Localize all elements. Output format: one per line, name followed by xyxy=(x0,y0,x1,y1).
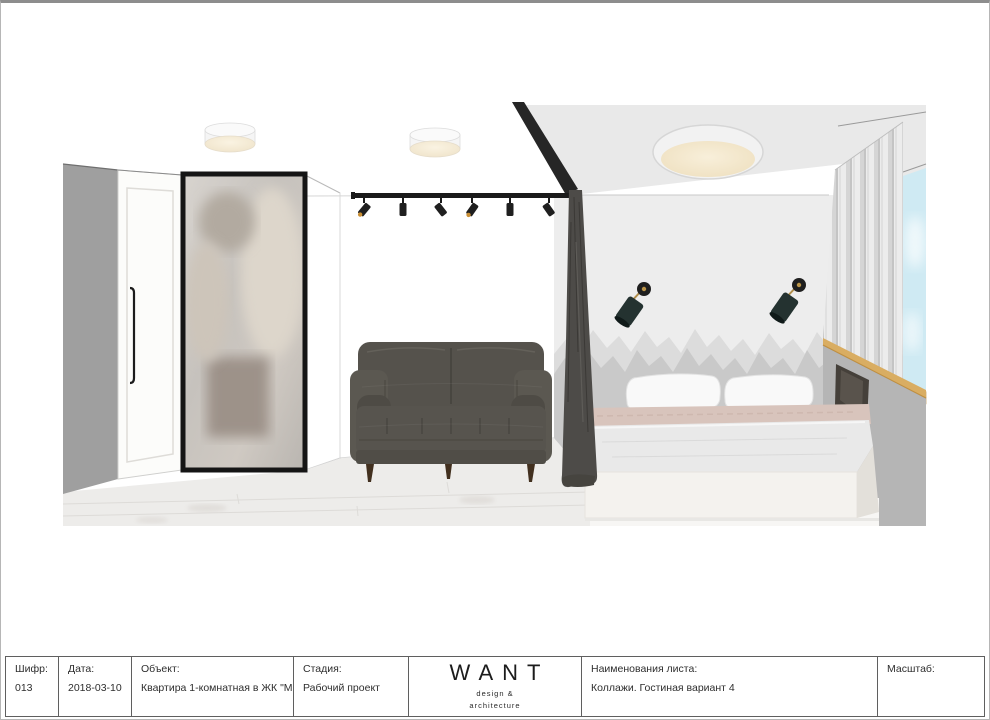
stage-label: Стадия: xyxy=(303,664,399,675)
want-logo: WANT design & architecture xyxy=(408,657,581,716)
object-value: Квартира 1-комнатная в ЖК "Май" xyxy=(141,683,284,694)
titleblock-cell-object: Объект: Квартира 1-комнатная в ЖК "Май" xyxy=(131,657,293,716)
drawing-sheet: Шифр: 013 Дата: 2018-03-10 Объект: Кварт… xyxy=(0,0,990,720)
stage-value: Рабочий проект xyxy=(303,683,399,694)
ceiling-lamp-small-2 xyxy=(410,128,460,157)
titleblock-cell-sheet: Наименования листа: Коллажи. Гостиная ва… xyxy=(581,657,877,716)
pillow xyxy=(626,374,720,412)
left-wall xyxy=(63,164,118,494)
collage-image xyxy=(57,102,929,526)
scale-label: Масштаб: xyxy=(887,664,975,675)
code-value: 013 xyxy=(15,683,49,694)
date-value: 2018-03-10 xyxy=(68,683,122,694)
sheet-value: Коллажи. Гостиная вариант 4 xyxy=(591,683,868,694)
mirror xyxy=(183,174,305,470)
bed-base xyxy=(585,472,857,518)
sofa xyxy=(350,342,552,482)
code-label: Шифр: xyxy=(15,664,49,675)
sheet-label: Наименования листа: xyxy=(591,664,868,675)
wardrobe-door xyxy=(118,170,182,479)
titleblock: Шифр: 013 Дата: 2018-03-10 Объект: Кварт… xyxy=(5,656,985,717)
ceiling-lamp-small-1 xyxy=(205,123,255,152)
ceiling-lamp-large xyxy=(653,125,763,179)
titleblock-cell-code: Шифр: 013 xyxy=(6,657,58,716)
logo-title: WANT xyxy=(450,662,550,684)
object-label: Объект: xyxy=(141,664,284,675)
titleblock-cell-stage: Стадия: Рабочий проект xyxy=(293,657,408,716)
titleblock-cell-scale: Масштаб: xyxy=(877,657,984,716)
date-label: Дата: xyxy=(68,664,122,675)
titleblock-cell-date: Дата: 2018-03-10 xyxy=(58,657,131,716)
logo-subtitle: design & architecture xyxy=(469,688,520,711)
window-sky xyxy=(903,168,926,408)
